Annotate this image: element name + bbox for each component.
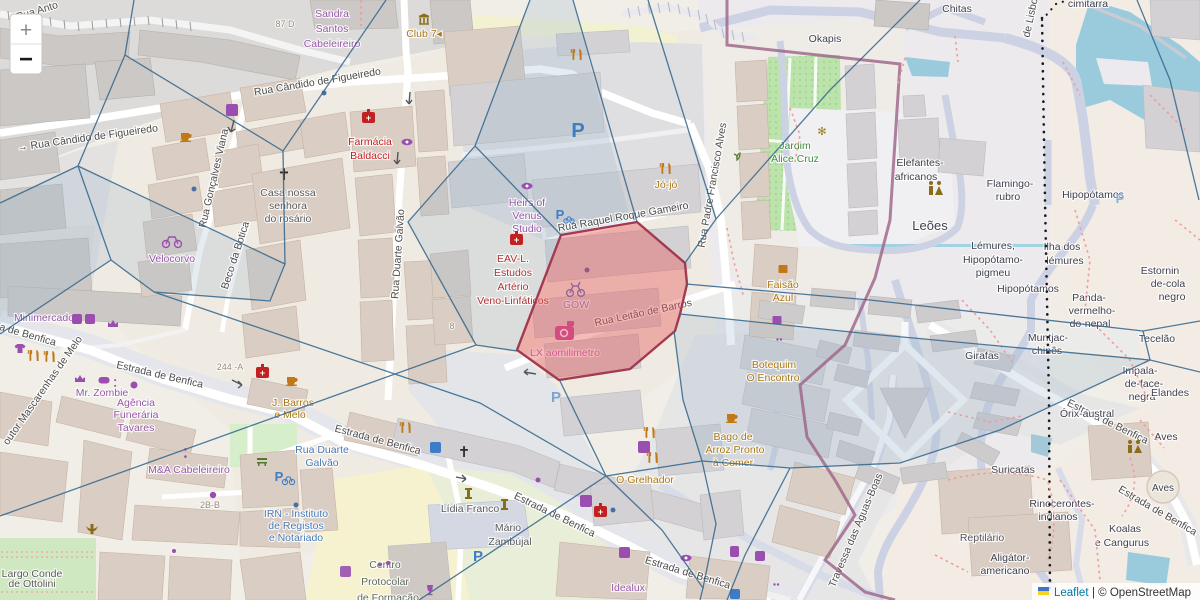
svg-text:Azul: Azul <box>773 292 793 304</box>
svg-text:244 -A: 244 -A <box>217 362 244 372</box>
svg-text:Cabeleireiro: Cabeleireiro <box>304 38 361 50</box>
svg-text:P: P <box>556 207 565 222</box>
svg-text:do rosário: do rosário <box>265 213 312 225</box>
svg-text:lémures: lémures <box>1046 255 1083 267</box>
svg-text:+: + <box>260 368 265 378</box>
svg-text:−: − <box>19 46 33 73</box>
svg-text:Lémures,: Lémures, <box>971 240 1015 252</box>
svg-text:Club 7◂: Club 7◂ <box>406 28 442 40</box>
svg-text:Elefantes-: Elefantes- <box>896 157 944 169</box>
svg-text:Botequim: Botequim <box>752 359 797 371</box>
svg-text:P: P <box>1116 191 1125 206</box>
svg-text:Aligátor-: Aligátor- <box>990 552 1030 564</box>
svg-text:Koalas: Koalas <box>1109 523 1141 535</box>
svg-text:Casa nossa: Casa nossa <box>260 187 316 199</box>
svg-text:Flamingo-: Flamingo- <box>987 178 1034 190</box>
svg-text:Protocolar: Protocolar <box>361 576 409 588</box>
svg-text:cimitarra: cimitarra <box>1068 0 1108 10</box>
svg-text:Estudos: Estudos <box>494 267 532 279</box>
svg-text:Hipopótamo-: Hipopótamo- <box>963 254 1024 266</box>
svg-text:Leaflet: Leaflet <box>1054 587 1089 599</box>
svg-text:Okapis: Okapis <box>809 33 842 45</box>
svg-text:pigmeu: pigmeu <box>976 267 1011 279</box>
svg-text:Hipopótamos: Hipopótamos <box>1062 189 1124 201</box>
svg-text:O Encontro: O Encontro <box>746 372 799 384</box>
svg-text:87 D: 87 D <box>275 19 295 29</box>
svg-text:de Registos: de Registos <box>268 520 323 532</box>
svg-text:8: 8 <box>449 321 454 331</box>
svg-text:2B-B: 2B-B <box>200 500 220 510</box>
svg-text:●: ● <box>378 560 383 569</box>
svg-text:Bago de: Bago de <box>713 431 752 443</box>
svg-text:P: P <box>571 120 584 142</box>
svg-text:de-cola: de-cola <box>1151 278 1186 290</box>
svg-text:Arroz Pronto: Arroz Pronto <box>706 444 765 456</box>
svg-text:M&A Cabeleireiro: M&A Cabeleireiro <box>148 464 230 476</box>
svg-text:Panda-: Panda- <box>1072 292 1106 304</box>
svg-text:Reptilário: Reptilário <box>960 532 1005 544</box>
svg-text:Rinocerontes-: Rinocerontes- <box>1029 498 1095 510</box>
svg-text:Elandes: Elandes <box>1151 387 1189 399</box>
svg-text:Tavares: Tavares <box>118 422 155 434</box>
svg-text:Leões: Leões <box>912 218 948 233</box>
svg-text:IRN - Instituto: IRN - Instituto <box>264 508 328 520</box>
svg-text:Lídia Franco: Lídia Franco <box>441 503 500 515</box>
svg-text:e Notariado: e Notariado <box>269 532 323 544</box>
svg-text:✻: ✻ <box>817 126 826 138</box>
svg-text:Baldacci: Baldacci <box>350 150 390 162</box>
svg-text:e Cangurus: e Cangurus <box>1095 537 1149 549</box>
svg-text:de Formação: de Formação <box>357 592 419 600</box>
svg-text:Ilha dos: Ilha dos <box>1044 241 1081 253</box>
svg-text:Centro: Centro <box>369 559 401 571</box>
svg-text:Sandra: Sandra <box>315 8 349 20</box>
svg-text:Velocorvo: Velocorvo <box>149 253 195 265</box>
svg-text:EAV-L.: EAV-L. <box>497 253 529 265</box>
svg-text:Aves: Aves <box>1152 483 1174 494</box>
svg-text:de Ottolini: de Ottolini <box>8 578 55 590</box>
svg-text:Órix-austral: Órix-austral <box>1060 407 1114 420</box>
svg-text:Zambújal: Zambújal <box>488 536 531 548</box>
svg-text:rubro: rubro <box>996 191 1021 203</box>
svg-text:americano: americano <box>980 565 1029 577</box>
svg-text:e Melo: e Melo <box>274 409 306 421</box>
svg-text:Galvão: Galvão <box>305 457 338 469</box>
svg-text:Idealux: Idealux <box>611 582 646 594</box>
svg-text:Girafas: Girafas <box>965 350 999 362</box>
svg-text:J. Barros: J. Barros <box>272 397 314 409</box>
svg-text:Rua Duarte: Rua Duarte <box>295 444 349 456</box>
svg-text:senhora: senhora <box>269 200 307 212</box>
svg-text:Venus: Venus <box>512 210 541 222</box>
svg-text:+: + <box>598 507 603 517</box>
svg-text:O Grelhador: O Grelhador <box>616 474 674 486</box>
svg-text:| © OpenStreetMap: | © OpenStreetMap <box>1092 587 1191 599</box>
svg-text:Aves: Aves <box>1154 431 1177 443</box>
svg-text:Santos: Santos <box>316 23 349 35</box>
svg-text:Artério: Artério <box>498 281 529 293</box>
svg-text:Heirs of: Heirs of <box>509 197 545 209</box>
svg-text:Jó-jó: Jó-jó <box>655 179 678 191</box>
svg-text:vermelho-: vermelho- <box>1069 305 1116 317</box>
svg-text:Alice Cruz: Alice Cruz <box>771 153 819 165</box>
svg-text:+: + <box>20 19 32 42</box>
svg-text:Agência: Agência <box>117 397 155 409</box>
svg-text:Hipopótamos: Hipopótamos <box>997 283 1059 295</box>
svg-text:Mário: Mário <box>495 522 521 534</box>
svg-text:indianos: indianos <box>1038 511 1077 523</box>
svg-text:Farmácia: Farmácia <box>348 136 392 148</box>
svg-text:+: + <box>514 235 519 245</box>
svg-text:+: + <box>366 113 371 123</box>
svg-text:Estornin: Estornin <box>1141 265 1180 277</box>
svg-text:Suricatas: Suricatas <box>991 464 1035 476</box>
svg-text:Funerária: Funerária <box>114 409 159 421</box>
svg-text:negro: negro <box>1159 291 1186 303</box>
svg-text:✝: ✝ <box>458 444 471 461</box>
svg-text:P: P <box>551 389 561 406</box>
svg-text:Chitas: Chitas <box>942 3 972 15</box>
svg-text:Faisão: Faisão <box>767 279 799 291</box>
